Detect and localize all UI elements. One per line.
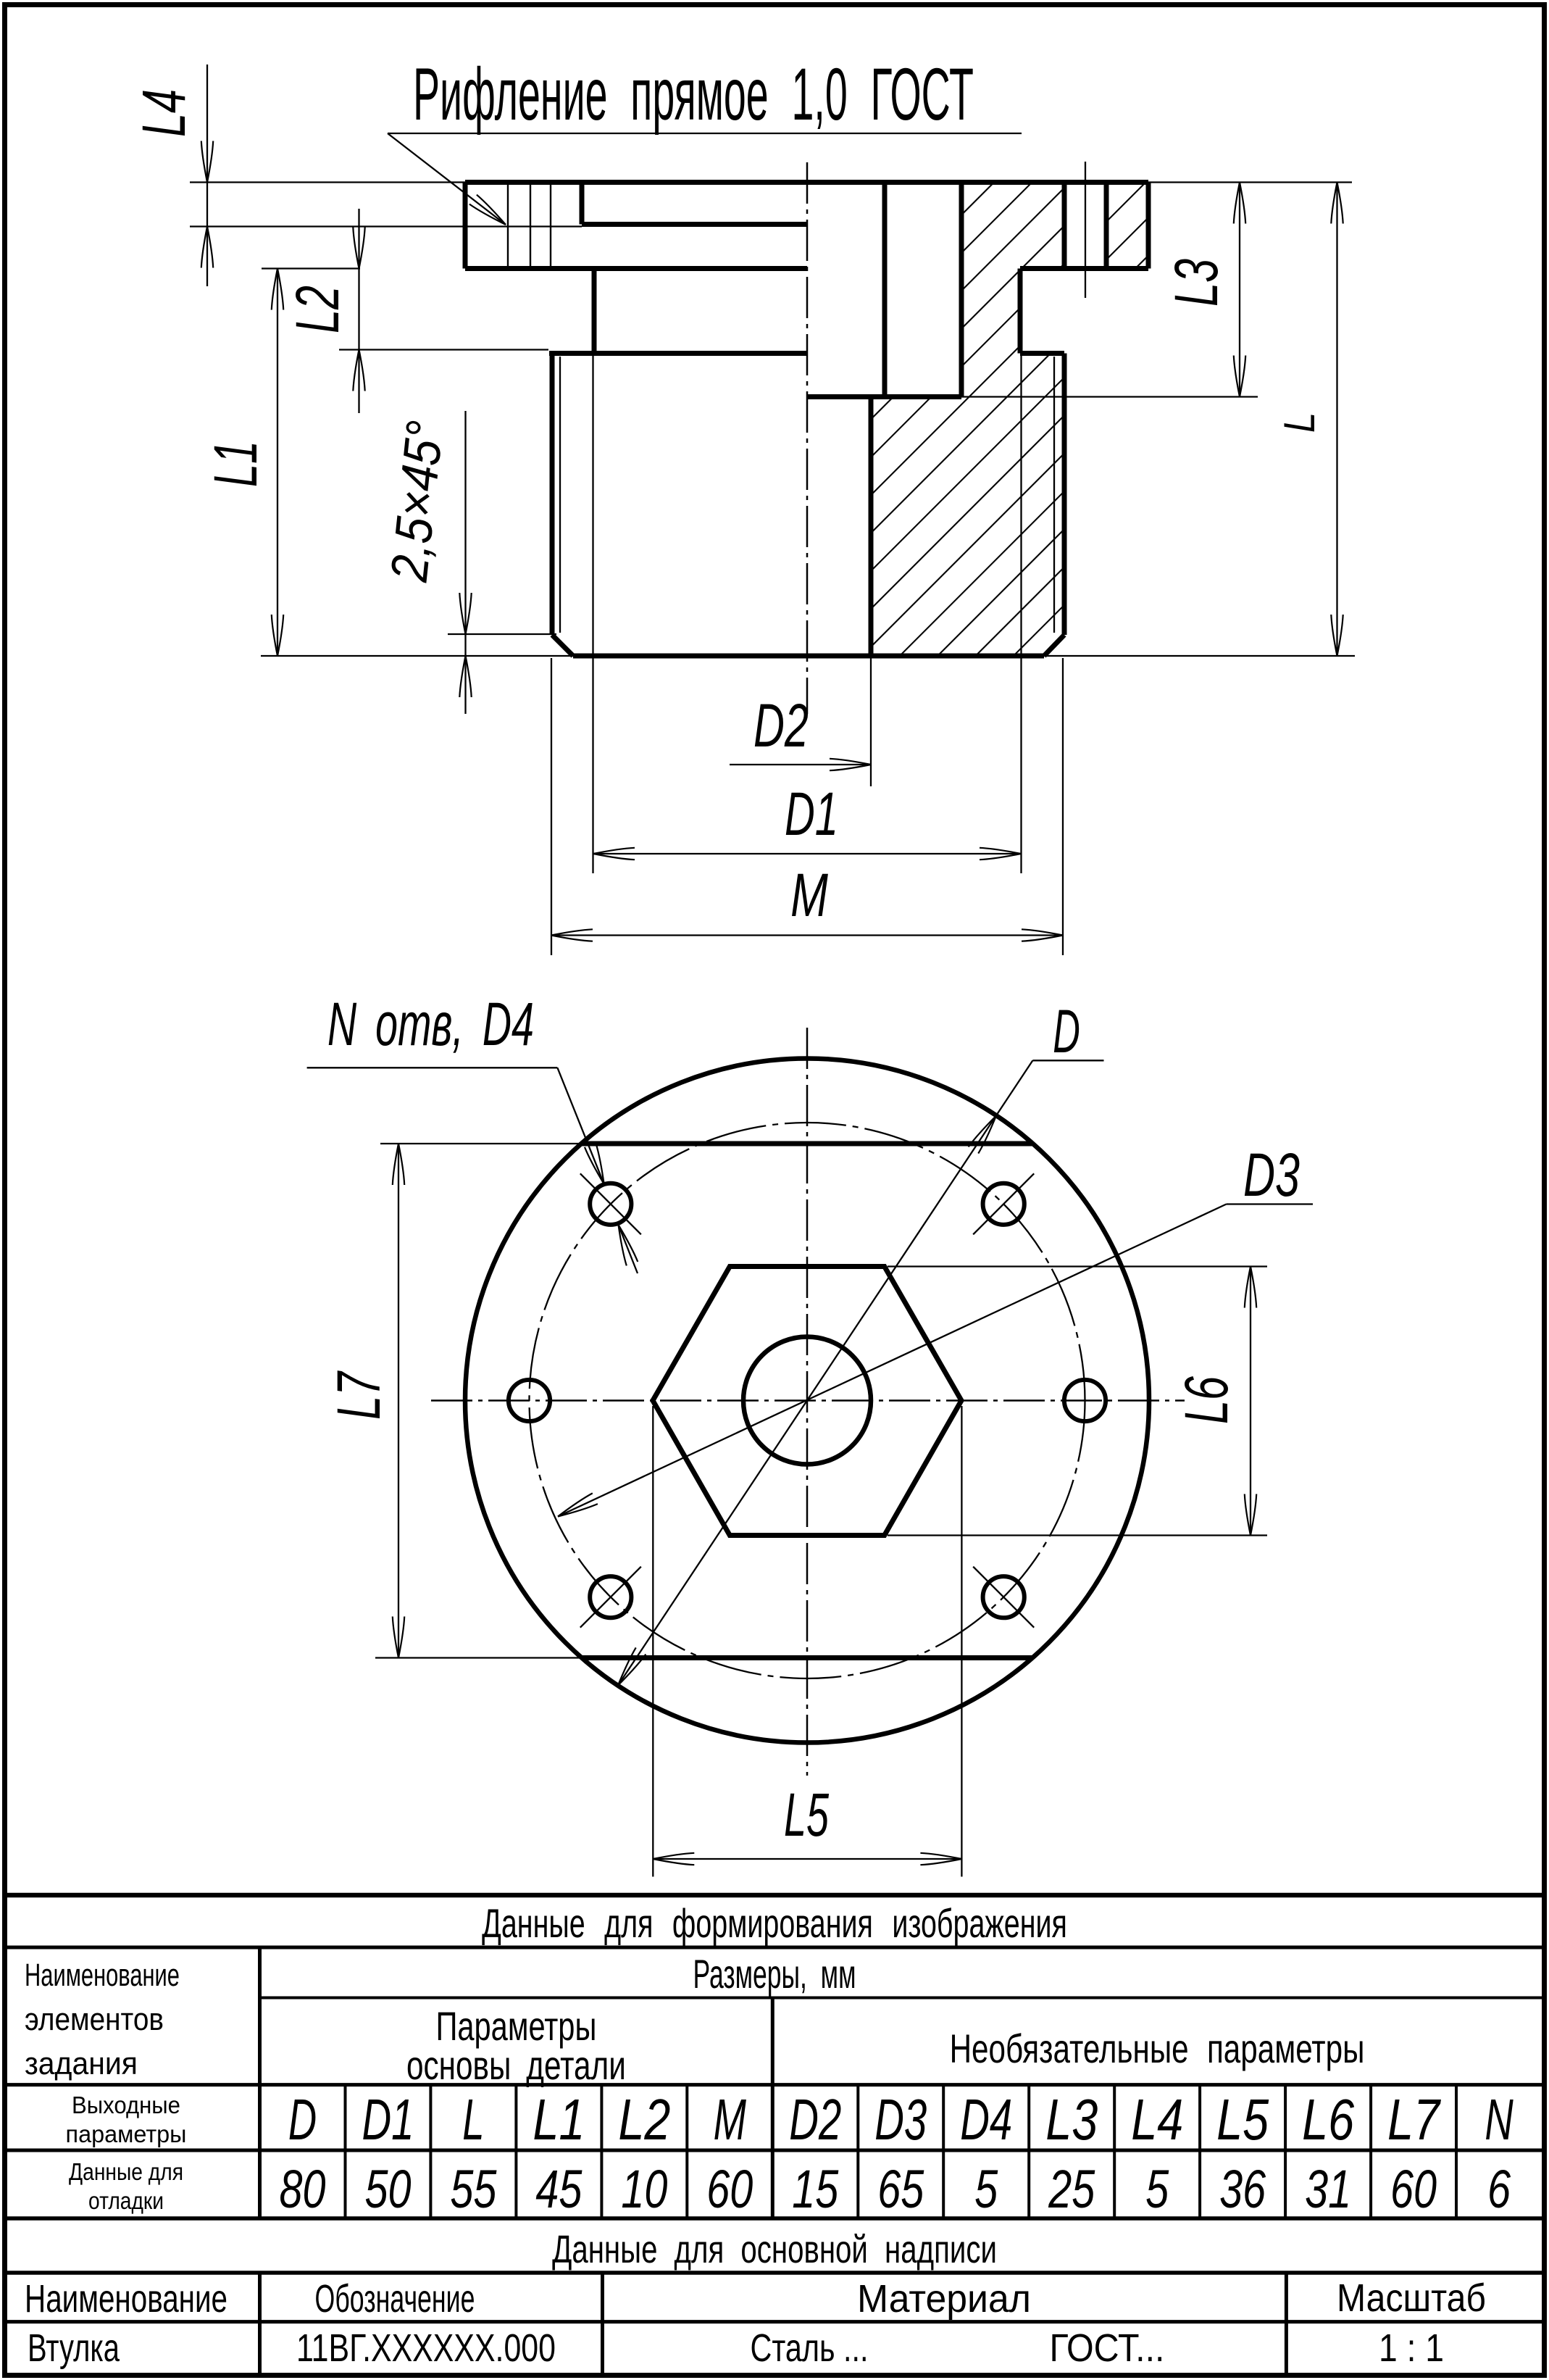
svg-text:11ВГ.XXXXXX.000: 11ВГ.XXXXXX.000 bbox=[296, 2326, 556, 2370]
svg-text:50: 50 bbox=[365, 2160, 412, 2220]
svg-text:45: 45 bbox=[535, 2160, 583, 2220]
svg-text:Сталь ...: Сталь ... bbox=[751, 2326, 869, 2371]
svg-text:M: M bbox=[790, 861, 828, 929]
svg-text:Рифление прямое 1,0 ГОСТ: Рифление прямое 1,0 ГОСТ bbox=[413, 54, 974, 136]
svg-text:L5: L5 bbox=[784, 1781, 829, 1850]
svg-text:1 : 1: 1 : 1 bbox=[1379, 2326, 1444, 2370]
svg-text:L6: L6 bbox=[1302, 2088, 1354, 2152]
svg-text:параметры: параметры bbox=[66, 2121, 187, 2147]
svg-text:элементов: элементов bbox=[25, 2001, 164, 2037]
svg-text:L5: L5 bbox=[1216, 2088, 1269, 2152]
svg-text:L2: L2 bbox=[618, 2088, 670, 2152]
svg-text:6: 6 bbox=[1487, 2160, 1511, 2220]
svg-text:D4: D4 bbox=[960, 2086, 1012, 2152]
svg-text:D2: D2 bbox=[789, 2086, 841, 2152]
svg-text:отладки: отладки bbox=[88, 2187, 164, 2215]
svg-text:36: 36 bbox=[1219, 2160, 1266, 2220]
svg-text:L6: L6 bbox=[1173, 1376, 1241, 1424]
svg-text:Наименование: Наименование bbox=[25, 2277, 227, 2321]
svg-text:задания: задания bbox=[25, 2047, 138, 2082]
svg-text:D1: D1 bbox=[362, 2086, 414, 2152]
svg-text:L4: L4 bbox=[130, 89, 199, 137]
svg-text:D2: D2 bbox=[753, 692, 809, 760]
svg-text:Размеры, мм: Размеры, мм bbox=[693, 1952, 856, 1997]
svg-text:5: 5 bbox=[974, 2160, 998, 2220]
svg-text:L2: L2 bbox=[284, 286, 352, 333]
svg-text:Данные для формирования изобра: Данные для формирования изображения bbox=[482, 1901, 1067, 1946]
svg-text:55: 55 bbox=[450, 2160, 497, 2220]
svg-text:N отв, D4: N отв, D4 bbox=[327, 991, 534, 1059]
svg-text:L1: L1 bbox=[202, 441, 270, 487]
svg-text:D1: D1 bbox=[785, 781, 838, 848]
svg-text:D3: D3 bbox=[1243, 1141, 1300, 1209]
svg-text:Данные для основной надписи: Данные для основной надписи bbox=[552, 2228, 997, 2271]
svg-text:Выходные: Выходные bbox=[72, 2092, 180, 2118]
svg-text:D3: D3 bbox=[874, 2086, 927, 2152]
svg-text:60: 60 bbox=[1390, 2160, 1437, 2220]
svg-text:L3: L3 bbox=[1045, 2088, 1098, 2152]
svg-text:65: 65 bbox=[877, 2160, 924, 2220]
svg-text:10: 10 bbox=[621, 2160, 667, 2220]
svg-text:Данные для: Данные для bbox=[69, 2158, 183, 2186]
svg-text:15: 15 bbox=[792, 2160, 839, 2220]
svg-text:Наименование: Наименование bbox=[25, 1958, 180, 1994]
svg-text:Масштаб: Масштаб bbox=[1337, 2276, 1486, 2319]
svg-text:L7: L7 bbox=[325, 1370, 393, 1420]
svg-text:L1: L1 bbox=[533, 2088, 585, 2152]
svg-text:31: 31 bbox=[1305, 2160, 1351, 2220]
svg-text:Обозначение: Обозначение bbox=[315, 2277, 475, 2321]
svg-text:D: D bbox=[288, 2088, 317, 2152]
svg-text:основы детали: основы детали bbox=[406, 2042, 626, 2088]
svg-text:Втулка: Втулка bbox=[28, 2326, 120, 2370]
svg-text:Необязательные параметры: Необязательные параметры bbox=[950, 2026, 1365, 2071]
svg-text:N: N bbox=[1485, 2088, 1513, 2152]
svg-text:Материал: Материал bbox=[857, 2277, 1031, 2321]
svg-text:25: 25 bbox=[1048, 2160, 1095, 2220]
svg-text:M: M bbox=[714, 2088, 746, 2152]
svg-text:L7: L7 bbox=[1387, 2088, 1441, 2152]
svg-text:60: 60 bbox=[706, 2160, 753, 2220]
svg-text:L: L bbox=[1275, 412, 1324, 433]
svg-text:D: D bbox=[1053, 997, 1080, 1065]
svg-text:ГОСТ...: ГОСТ... bbox=[1050, 2326, 1165, 2370]
svg-text:L3: L3 bbox=[1163, 259, 1231, 307]
svg-text:80: 80 bbox=[280, 2160, 326, 2220]
svg-text:L: L bbox=[462, 2088, 484, 2152]
svg-text:L4: L4 bbox=[1131, 2088, 1183, 2152]
svg-text:5: 5 bbox=[1145, 2160, 1169, 2220]
